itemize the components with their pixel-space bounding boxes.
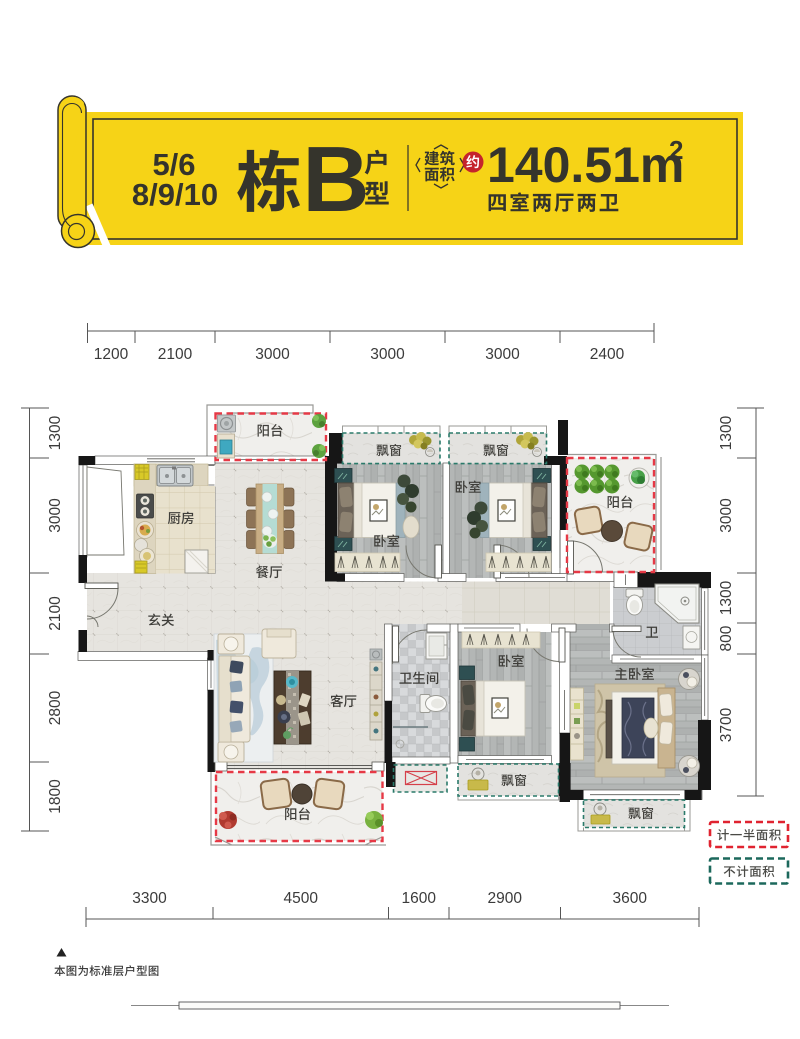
svg-text:1300: 1300 <box>718 580 735 615</box>
svg-text:8/9/10: 8/9/10 <box>132 177 218 212</box>
svg-text:1600: 1600 <box>401 890 436 907</box>
svg-text:800: 800 <box>718 625 735 651</box>
svg-text:1800: 1800 <box>47 779 64 814</box>
svg-text:3000: 3000 <box>718 498 735 533</box>
svg-text:3000: 3000 <box>47 498 64 533</box>
svg-text:3000: 3000 <box>485 346 520 363</box>
svg-text:4500: 4500 <box>283 890 318 907</box>
svg-text:2900: 2900 <box>487 890 522 907</box>
svg-text:3300: 3300 <box>132 890 167 907</box>
svg-text:3000: 3000 <box>370 346 405 363</box>
svg-text:140.51m: 140.51m <box>487 137 684 193</box>
svg-text:3000: 3000 <box>255 346 290 363</box>
svg-text:1300: 1300 <box>718 415 735 450</box>
svg-text:1200: 1200 <box>94 346 129 363</box>
svg-text:B: B <box>302 127 369 231</box>
svg-text:2100: 2100 <box>47 596 64 631</box>
svg-text:2: 2 <box>669 135 683 165</box>
svg-text:2800: 2800 <box>47 690 64 725</box>
svg-text:3600: 3600 <box>612 890 647 907</box>
svg-text:2400: 2400 <box>590 346 625 363</box>
svg-text:2100: 2100 <box>158 346 193 363</box>
svg-text:3700: 3700 <box>718 707 735 742</box>
svg-text:1300: 1300 <box>47 415 64 450</box>
